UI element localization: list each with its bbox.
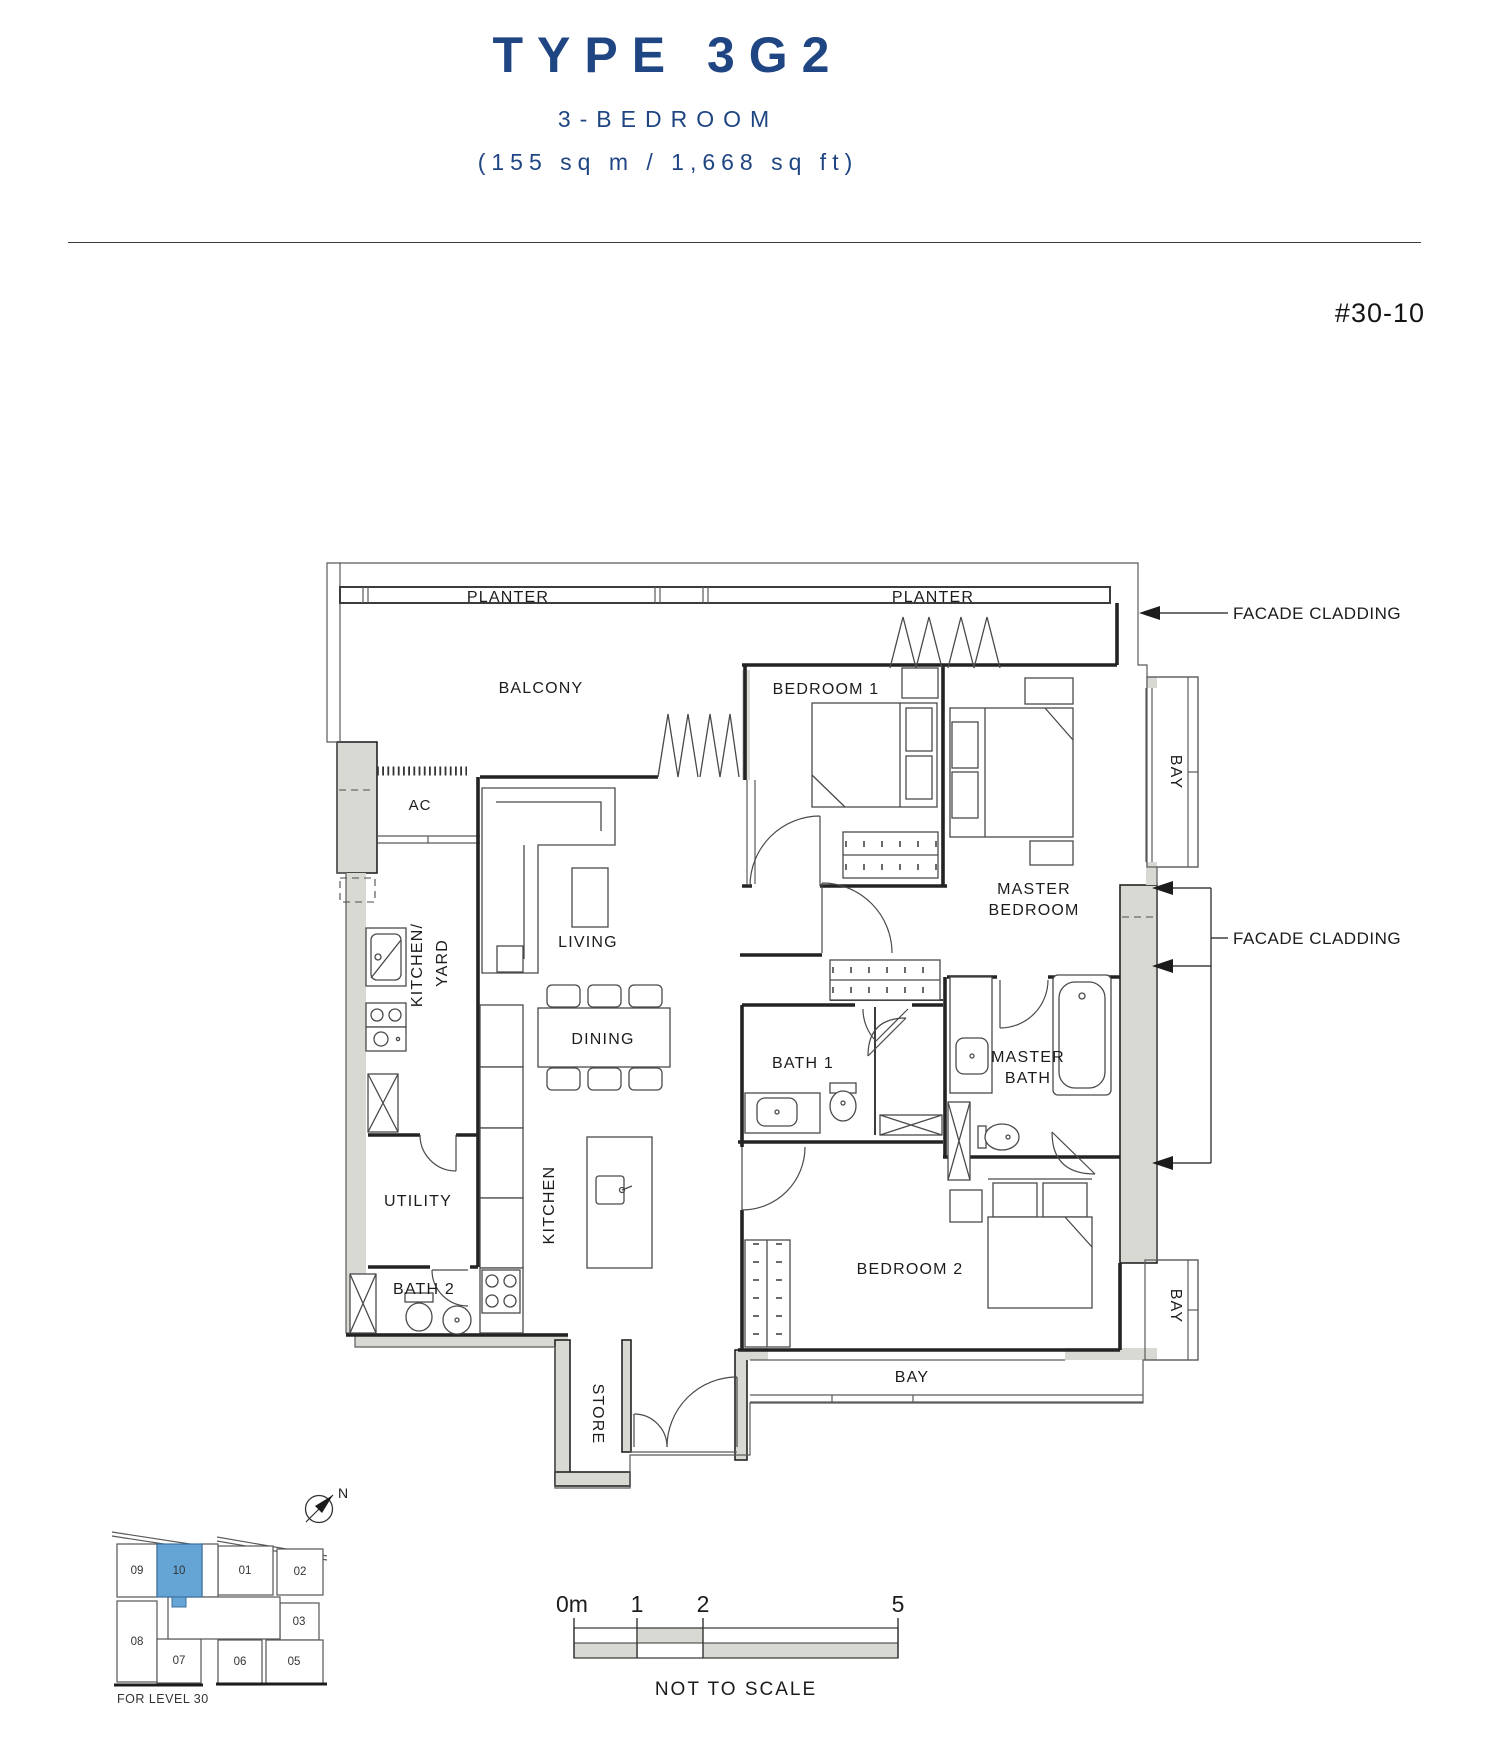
label-bath1: BATH 1 <box>772 1055 834 1072</box>
label-master-bedroom-2: BEDROOM <box>988 902 1079 919</box>
wardrobe-bed2 <box>745 1240 790 1347</box>
label-living: LIVING <box>558 934 618 951</box>
keyplan-label-05: 05 <box>288 1656 301 1668</box>
right-column-wall <box>1120 885 1157 1263</box>
store-bottom-wall <box>555 1472 630 1486</box>
shaft-bath2 <box>350 1274 376 1333</box>
yard-hob <box>366 1003 406 1051</box>
label-bay-bottom: BAY <box>895 1369 929 1386</box>
store-left-wall <box>555 1340 570 1485</box>
label-kitchen-yard-1: KITCHEN/ <box>409 923 426 1007</box>
label-kitchen: KITCHEN <box>541 1166 558 1245</box>
master-bed <box>950 678 1073 865</box>
keyplan-label-07: 07 <box>173 1655 186 1667</box>
bath1-fixtures <box>745 1083 856 1133</box>
label-utility: UTILITY <box>384 1193 452 1210</box>
scale-tick-1: 1 <box>631 1591 644 1617</box>
label-ac: AC <box>409 797 432 814</box>
keyplan-caption: FOR LEVEL 30 <box>117 1692 209 1706</box>
compass-north-label: N <box>338 1485 348 1501</box>
scale-tick-5: 5 <box>892 1591 905 1617</box>
bed2 <box>950 1179 1092 1308</box>
shaft-left <box>368 1074 398 1132</box>
label-bedroom1: BEDROOM 1 <box>773 681 880 698</box>
label-bay-upper: BAY <box>1167 755 1184 789</box>
compass: N <box>306 1485 349 1523</box>
corridor-closet <box>830 960 940 1000</box>
keyplan-label-10: 10 <box>173 1565 186 1577</box>
ac-ledge-wall <box>337 742 377 873</box>
keyplan-label-06: 06 <box>234 1656 247 1668</box>
label-kitchen-yard-2: YARD <box>434 939 451 987</box>
label-planter-right: PLANTER <box>892 589 974 606</box>
shaft-masterbath <box>948 1102 970 1180</box>
ledge-corridor <box>880 1115 942 1135</box>
label-dining: DINING <box>571 1031 634 1048</box>
scale-tick-0: 0m <box>556 1591 588 1617</box>
floor-plan-page: TYPE 3G2 3-BEDROOM (155 sq m / 1,668 sq … <box>0 0 1489 1749</box>
keyplan-label-03: 03 <box>293 1616 306 1628</box>
bath2-fixtures <box>405 1293 471 1334</box>
not-to-scale-note: NOT TO SCALE <box>655 1679 817 1700</box>
label-balcony: BALCONY <box>499 680 584 697</box>
label-master-bath-2: BATH <box>1005 1070 1051 1087</box>
facade-cladding-label-side: FACADE CLADDING <box>1233 929 1401 948</box>
label-planter-left: PLANTER <box>467 589 549 606</box>
label-master-bath-1: MASTER <box>991 1049 1065 1066</box>
label-bay-lower: BAY <box>1167 1289 1184 1323</box>
facade-callouts: FACADE CLADDING FACADE CLADDING <box>1139 604 1401 1170</box>
yard-sink <box>366 928 406 986</box>
keyplan-label-02: 02 <box>294 1566 307 1578</box>
coffee-table <box>572 868 608 927</box>
bay-corner-block <box>1145 1348 1157 1360</box>
scale-tick-2: 2 <box>697 1591 710 1617</box>
key-plan: 09 10 01 02 03 08 07 06 05 FOR LEVEL 30 … <box>112 1485 348 1706</box>
facade-cladding-label-top: FACADE CLADDING <box>1233 604 1401 623</box>
side-table <box>497 946 523 972</box>
scale-bar: 0m 1 2 5 NOT TO SCALE <box>556 1591 904 1700</box>
bay-bottom-block <box>1146 862 1157 885</box>
keyplan-label-08: 08 <box>131 1636 144 1648</box>
label-master-bedroom-1: MASTER <box>997 881 1071 898</box>
label-bedroom2: BEDROOM 2 <box>857 1261 964 1278</box>
keyplan-label-09: 09 <box>131 1565 144 1577</box>
floor-plan-drawing: FACADE CLADDING FACADE CLADDING PLANTER … <box>0 0 1489 1749</box>
wardrobe-bed1 <box>843 832 938 878</box>
store-right-wall <box>622 1340 631 1452</box>
stove <box>482 1270 520 1313</box>
label-store: STORE <box>589 1384 606 1445</box>
keyplan-label-01: 01 <box>239 1565 252 1577</box>
bay-top-block <box>1146 677 1157 688</box>
left-wall <box>346 873 366 1333</box>
label-bath2: BATH 2 <box>393 1281 455 1298</box>
